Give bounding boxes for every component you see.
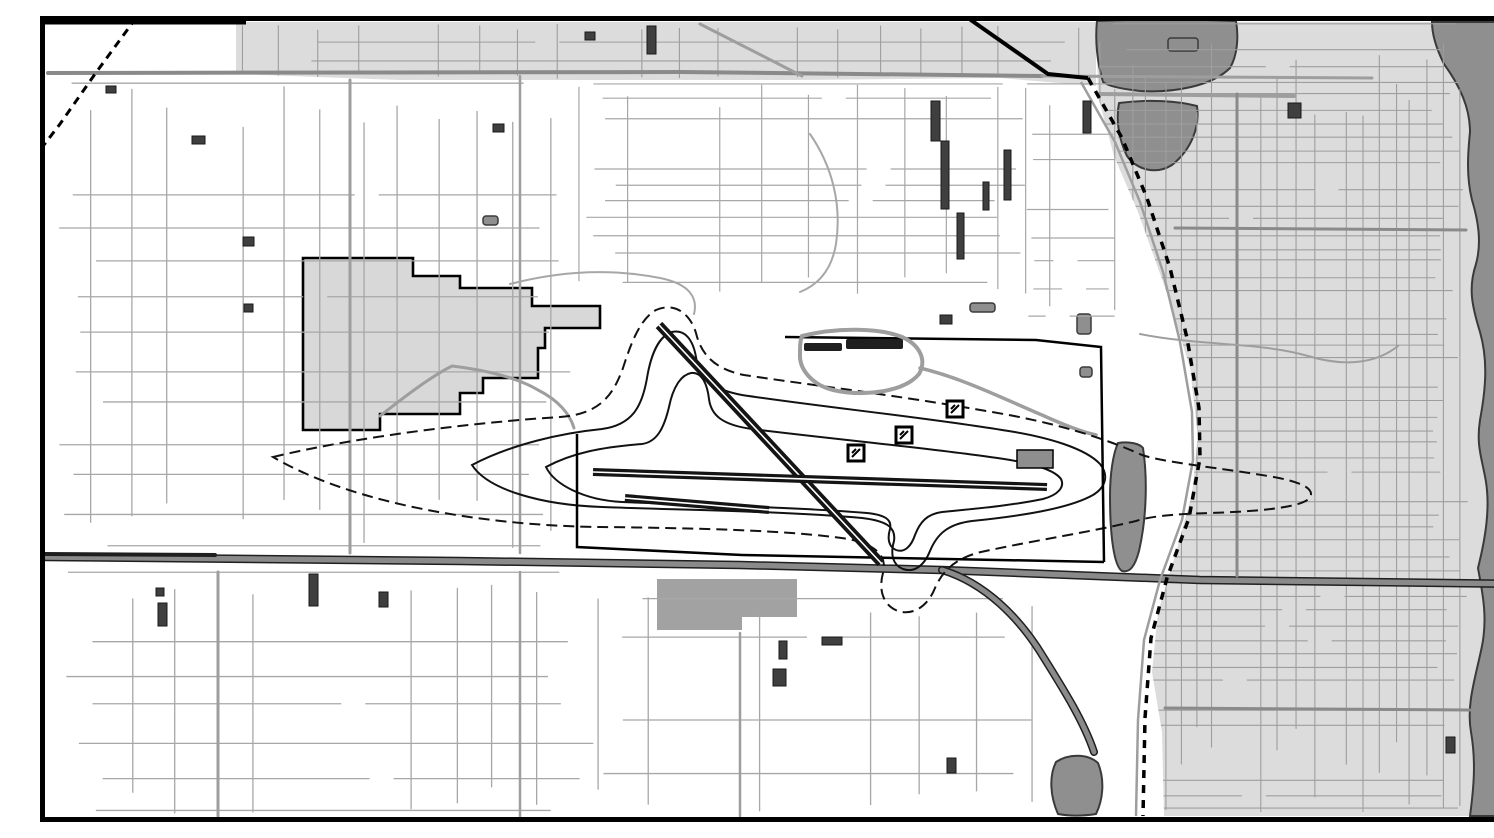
pond-south — [1051, 756, 1102, 816]
building — [156, 588, 164, 596]
building — [1004, 150, 1011, 200]
map-figure — [40, 16, 1494, 822]
terminal-building — [846, 339, 903, 349]
building — [957, 213, 964, 259]
building — [192, 136, 205, 144]
building — [493, 124, 504, 132]
building — [1288, 103, 1301, 118]
field-marker-1 — [848, 445, 864, 461]
highway-bottom-black-segment — [44, 554, 215, 555]
road-lake-crossing — [1100, 94, 1294, 96]
building — [947, 758, 956, 773]
building — [585, 32, 595, 40]
gray-blob-east1 — [1077, 314, 1091, 334]
building — [244, 304, 253, 312]
building — [243, 237, 254, 246]
field-marker-2 — [896, 427, 912, 443]
building — [983, 182, 989, 210]
terminal-building — [804, 343, 842, 351]
road-band-extension — [1042, 76, 1372, 78]
gray-blob-west-pond — [483, 216, 498, 225]
building — [158, 603, 167, 626]
building — [1083, 101, 1091, 133]
building — [931, 101, 940, 141]
building — [773, 669, 786, 686]
building — [647, 26, 656, 54]
gray-blob-band — [1168, 38, 1198, 51]
gray-blob-east2 — [1080, 367, 1092, 377]
building — [941, 141, 949, 209]
building — [1446, 737, 1455, 753]
apron-pad — [1017, 450, 1053, 468]
building — [822, 637, 842, 645]
field-marker-3 — [947, 401, 963, 417]
road-east-major-h2 — [1165, 708, 1470, 710]
building — [940, 315, 952, 324]
building — [106, 86, 116, 93]
road-east-major-h1 — [1175, 228, 1466, 230]
building — [309, 574, 318, 606]
gray-blob-apron-north — [970, 303, 995, 312]
building — [779, 641, 787, 659]
building — [379, 592, 388, 607]
map-canvas — [40, 16, 1494, 822]
